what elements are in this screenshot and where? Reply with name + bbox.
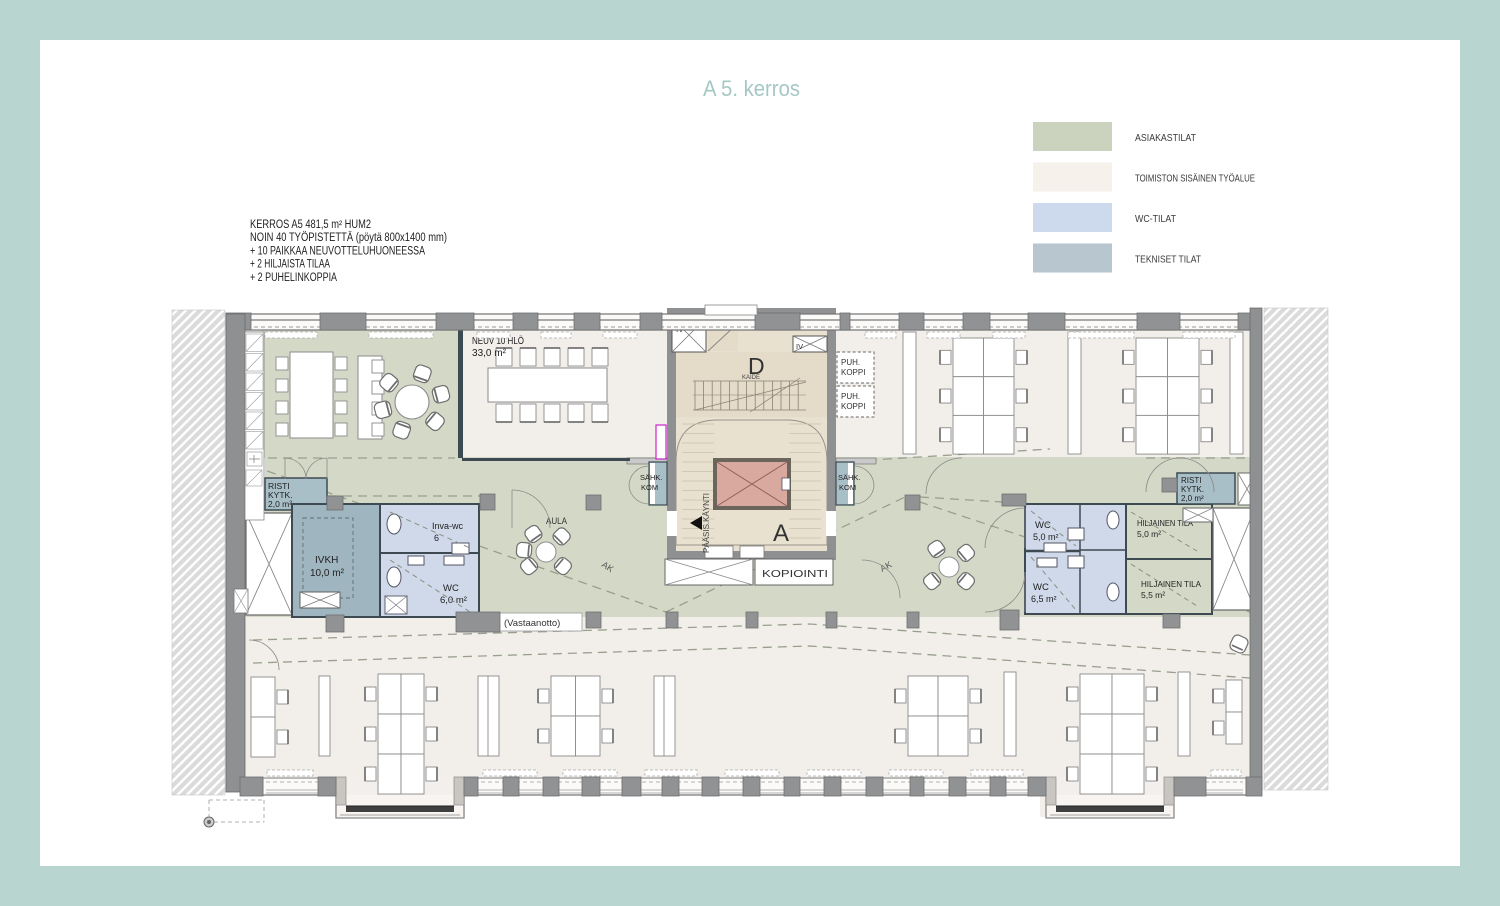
- svg-text:ASIAKASTILAT: ASIAKASTILAT: [1135, 132, 1196, 144]
- svg-text:KOM: KOM: [641, 483, 658, 492]
- svg-text:KOPIOINTI: KOPIOINTI: [762, 568, 828, 580]
- svg-text:KERROS A5 481,5 m² HUM2: KERROS A5 481,5 m² HUM2: [250, 219, 371, 231]
- svg-text:+ 10 PAIKKAA NEUVOTTELUHUONEES: + 10 PAIKKAA NEUVOTTELUHUONEESSA: [250, 245, 425, 257]
- svg-text:6: 6: [434, 533, 439, 543]
- svg-text:WC: WC: [1033, 582, 1049, 593]
- svg-text:A 5. kerros: A 5. kerros: [703, 76, 800, 101]
- svg-text:5,0 m²: 5,0 m²: [1137, 529, 1161, 539]
- svg-text:WC-TILAT: WC-TILAT: [1135, 213, 1176, 225]
- svg-text:WC: WC: [1035, 520, 1051, 531]
- svg-text:6,5 m²: 6,5 m²: [1031, 594, 1057, 604]
- svg-text:KOPPI: KOPPI: [841, 402, 865, 411]
- svg-text:5,5 m²: 5,5 m²: [1141, 590, 1165, 600]
- svg-text:A: A: [773, 520, 789, 547]
- svg-text:RISTI: RISTI: [1181, 476, 1201, 485]
- svg-text:WC: WC: [443, 583, 459, 594]
- svg-text:2,0 m²: 2,0 m²: [268, 499, 292, 509]
- svg-text:PUH.: PUH.: [841, 358, 860, 367]
- svg-text:10,0 m²: 10,0 m²: [310, 568, 345, 579]
- svg-text:D: D: [748, 353, 765, 379]
- svg-text:TOIMISTON SISÄINEN TYÖALUE: TOIMISTON SISÄINEN TYÖALUE: [1135, 173, 1255, 185]
- svg-text:5,0 m²: 5,0 m²: [1033, 532, 1059, 542]
- svg-text:HILJAINEN TILA: HILJAINEN TILA: [1141, 579, 1201, 589]
- svg-text:SÄHK.: SÄHK.: [838, 473, 861, 482]
- svg-text:PÄÄSIS.KÄYNTI: PÄÄSIS.KÄYNTI: [702, 493, 711, 553]
- svg-text:33,0 m²: 33,0 m²: [472, 347, 506, 359]
- svg-text:+ 2 PUHELINKOPPIA: + 2 PUHELINKOPPIA: [250, 272, 337, 284]
- svg-text:6,0 m²: 6,0 m²: [440, 595, 467, 606]
- svg-text:Inva-wc: Inva-wc: [432, 521, 464, 531]
- svg-text:(Vastaanotto): (Vastaanotto): [504, 618, 560, 629]
- svg-text:KYTK.: KYTK.: [1181, 485, 1204, 494]
- svg-text:NOIN 40 TYÖPISTETTÄ (pöytä 800: NOIN 40 TYÖPISTETTÄ (pöytä 800x1400 mm): [250, 232, 447, 244]
- svg-text:+ 2 HILJAISTA TILAA: + 2 HILJAISTA TILAA: [250, 259, 330, 271]
- svg-text:SÄHK.: SÄHK.: [640, 473, 663, 482]
- svg-text:KOPPI: KOPPI: [841, 368, 865, 377]
- svg-text:KOM: KOM: [839, 483, 856, 492]
- svg-text:PUH.: PUH.: [841, 392, 860, 401]
- svg-text:IV: IV: [796, 342, 803, 351]
- svg-text:IVKH: IVKH: [315, 555, 338, 566]
- svg-text:TEKNISET TILAT: TEKNISET TILAT: [1135, 254, 1201, 266]
- svg-text:2,0 m²: 2,0 m²: [1181, 494, 1204, 503]
